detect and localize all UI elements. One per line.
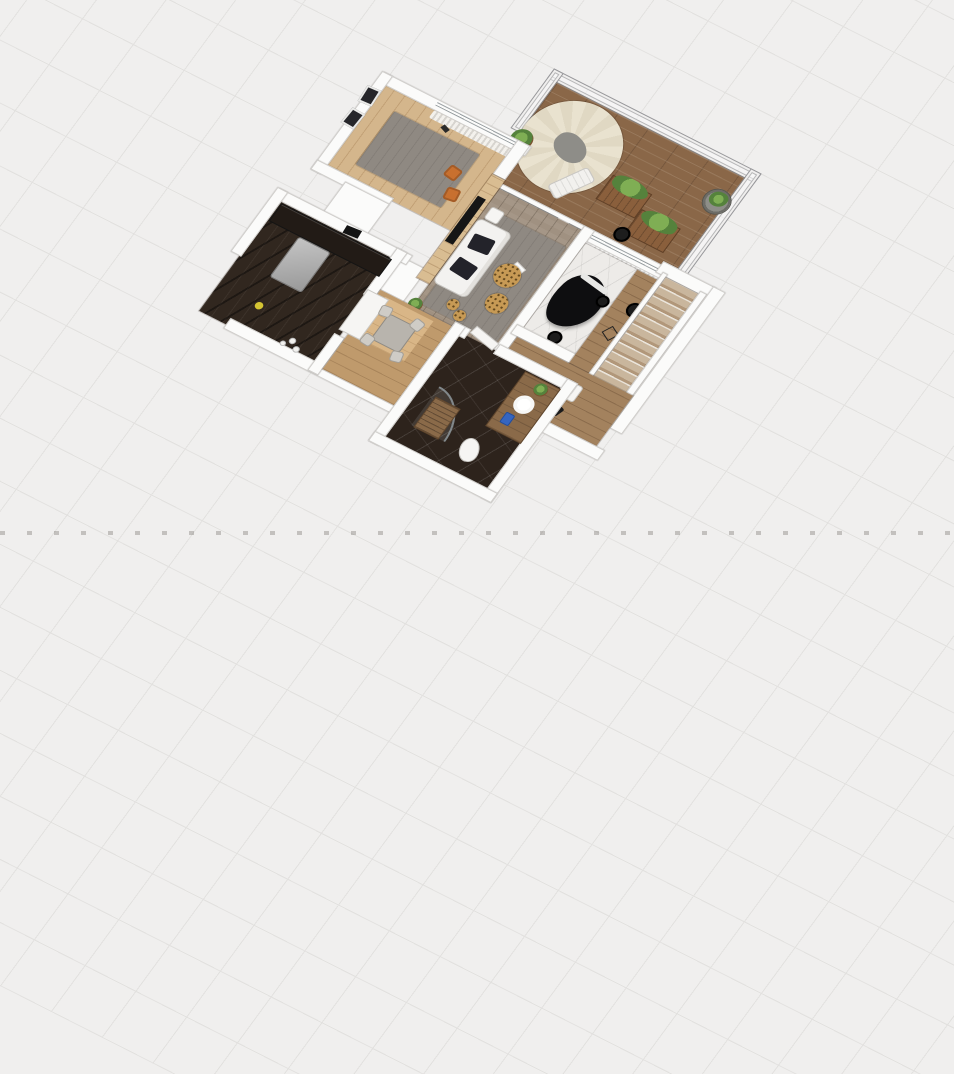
sofa-cushion-1	[467, 233, 496, 255]
floorplanner-3d-viewport: { "scene": { "type": "3d-floorplan-birds…	[0, 0, 954, 537]
sofa-cushion-2	[449, 256, 479, 280]
parasol-finial-shadow	[547, 127, 594, 168]
floorplan-3d-scene[interactable]	[0, 0, 853, 622]
bottom-grid-dashes	[0, 531, 954, 535]
